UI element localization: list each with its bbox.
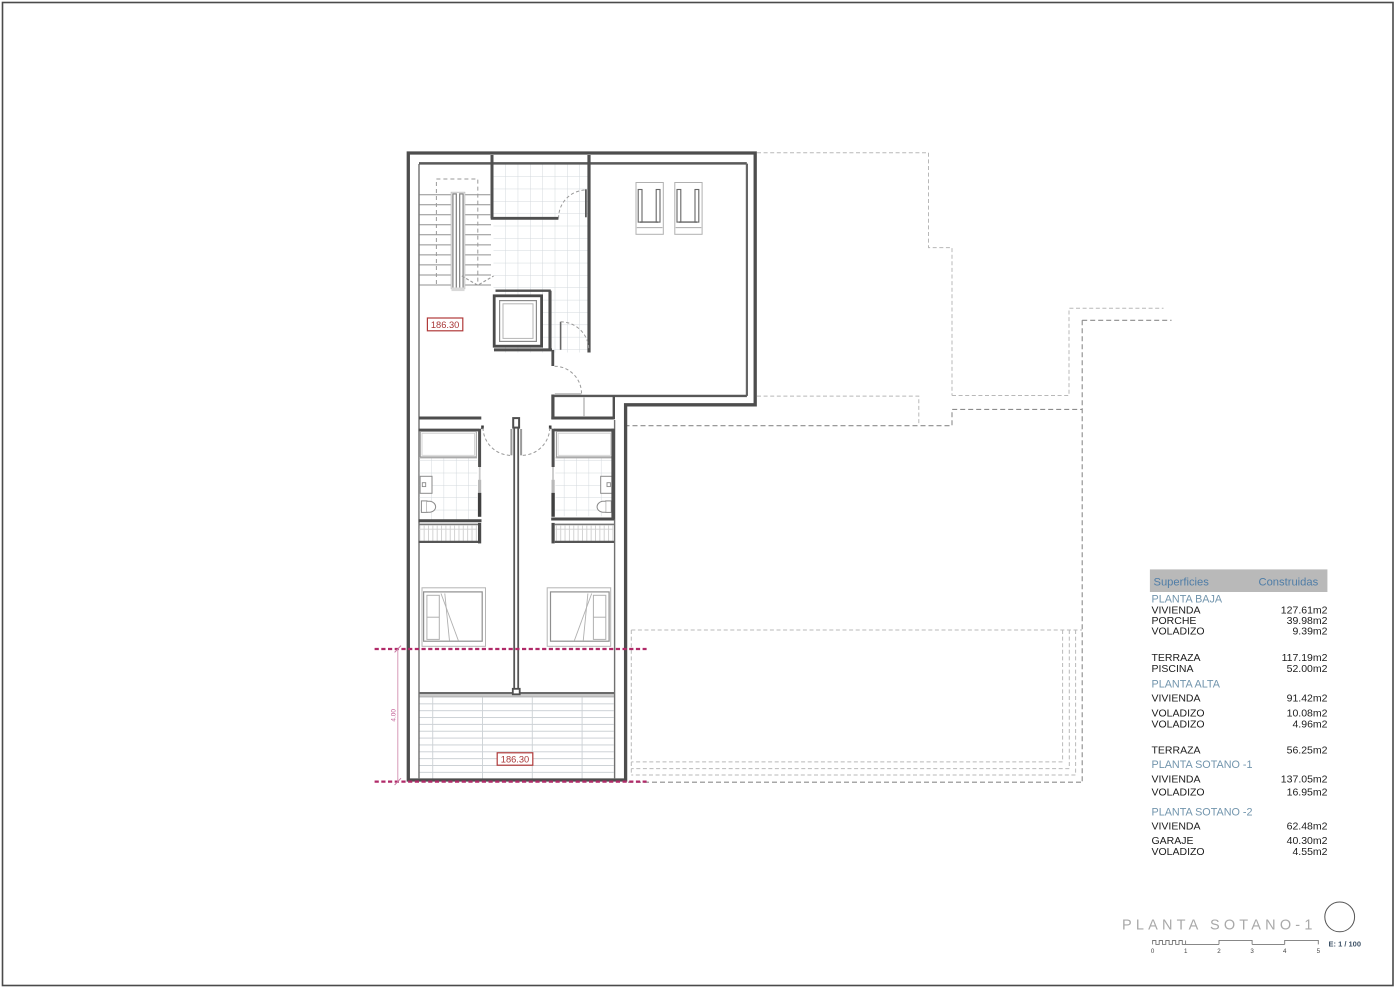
svg-text:VOLADIZO: VOLADIZO	[1152, 846, 1205, 858]
svg-text:E: 1 / 100: E: 1 / 100	[1329, 939, 1362, 948]
svg-text:186.30: 186.30	[431, 320, 459, 330]
svg-text:10.08m2: 10.08m2	[1287, 707, 1328, 719]
svg-text:PLANTA SOTANO -2: PLANTA SOTANO -2	[1152, 807, 1253, 819]
svg-text:4.96m2: 4.96m2	[1292, 719, 1327, 731]
svg-text:137.05m2: 137.05m2	[1281, 773, 1328, 785]
svg-text:PLANTA BAJA: PLANTA BAJA	[1152, 593, 1223, 605]
svg-text:52.00m2: 52.00m2	[1287, 663, 1328, 675]
svg-text:VIVIENDA: VIVIENDA	[1152, 773, 1201, 785]
svg-text:Construidas: Construidas	[1259, 576, 1319, 588]
svg-text:9.39m2: 9.39m2	[1292, 626, 1327, 638]
svg-text:3: 3	[1250, 948, 1254, 955]
svg-text:Superficies: Superficies	[1154, 576, 1210, 588]
svg-text:VOLADIZO: VOLADIZO	[1152, 719, 1205, 731]
svg-text:VIVIENDA: VIVIENDA	[1152, 821, 1201, 833]
svg-text:TERRAZA: TERRAZA	[1152, 745, 1201, 757]
svg-text:5: 5	[1317, 948, 1321, 955]
svg-text:4.00: 4.00	[391, 709, 398, 722]
svg-text:1: 1	[1184, 948, 1188, 955]
svg-text:62.48m2: 62.48m2	[1287, 821, 1328, 833]
svg-text:VOLADIZO: VOLADIZO	[1152, 786, 1205, 798]
svg-text:PLANTA SOTANO-1: PLANTA SOTANO-1	[1122, 918, 1317, 934]
svg-text:VOLADIZO: VOLADIZO	[1152, 626, 1205, 638]
svg-text:91.42m2: 91.42m2	[1287, 693, 1328, 705]
svg-text:PISCINA: PISCINA	[1152, 663, 1194, 675]
svg-text:16.95m2: 16.95m2	[1287, 786, 1328, 798]
svg-text:4.55m2: 4.55m2	[1292, 846, 1327, 858]
svg-text:PLANTA SOTANO -1: PLANTA SOTANO -1	[1152, 759, 1253, 771]
svg-text:186.30: 186.30	[501, 755, 529, 765]
svg-text:0: 0	[1151, 948, 1155, 955]
svg-text:2: 2	[1217, 948, 1221, 955]
svg-text:4: 4	[1283, 948, 1287, 955]
svg-text:VOLADIZO: VOLADIZO	[1152, 707, 1205, 719]
svg-text:PLANTA ALTA: PLANTA ALTA	[1152, 678, 1221, 690]
svg-text:56.25m2: 56.25m2	[1287, 745, 1328, 757]
svg-text:VIVIENDA: VIVIENDA	[1152, 693, 1201, 705]
